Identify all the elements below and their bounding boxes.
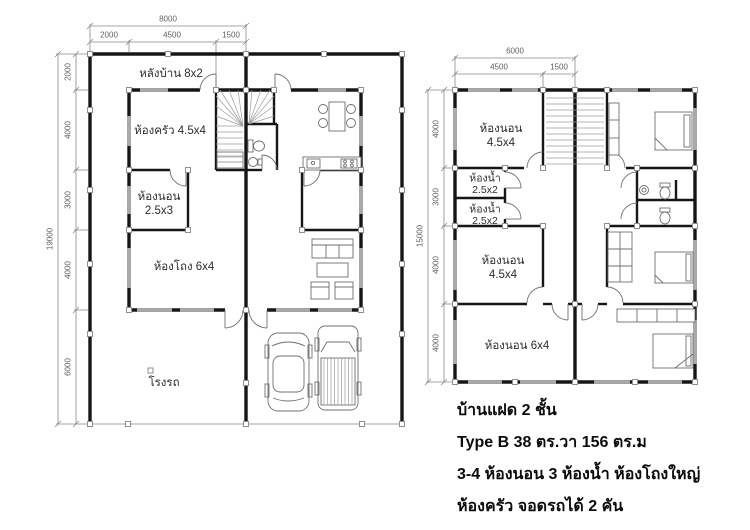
dim-sf-height-seg-3: 4000 [432,334,441,352]
room-label-hall: ห้องโถง 6x4 [154,258,215,276]
caption-extras: ห้องครัว จอดรถได้ 2 คัน [457,494,623,519]
dining-table [319,102,356,131]
dim-gf-width-seg-1: 4500 [163,31,181,40]
room-label-bedroom-1: ห้องนอน [138,188,181,206]
second-floor-furniture [608,103,695,368]
understair-cabinet [217,152,243,168]
ground-floor-dimensions [55,23,249,427]
room-label-bath-2-size: 2.5x2 [472,215,498,227]
dim-gf-height-seg-3: 4000 [64,261,73,279]
dim-sf-height-seg-1: 3000 [432,188,441,206]
sedan-car [265,333,312,411]
ground-floor-plan [55,23,405,427]
toilet-icon [248,140,265,167]
toilet-icon [660,208,670,224]
second-floor-plan [425,55,698,385]
room-label-garage: โรงรถ [148,374,179,392]
floor-plan-sheet: 8000 2000 4500 1500 19000 2000 4000 3000… [0,0,750,530]
room-label-kitchen: ห้องครัว 4.5x4 [134,122,206,140]
dim-gf-total-height: 19000 [46,228,55,250]
garage-area [148,326,361,411]
bed [655,112,692,150]
dim-sf-width-seg-0: 4500 [490,63,508,72]
wardrobe [608,232,632,282]
room-label-bedroom-top: ห้องนอน [480,120,523,138]
dim-sf-width-seg-1: 1500 [550,63,568,72]
room-label-bath-1-size: 2.5x2 [472,184,498,196]
room-label-bedroom-mid: ห้องนอน [482,252,525,270]
dim-gf-width-seg-2: 1500 [222,31,240,40]
dim-sf-height-seg-0: 4000 [432,120,441,138]
dim-sf-total-width: 6000 [506,47,524,56]
caption-type: Type B 38 ตร.วา 156 ตร.ม [457,430,647,455]
room-label-bedroom-bottom: ห้องนอน 6x4 [485,337,549,355]
pickup-truck [315,326,361,410]
dim-gf-height-seg-1: 4000 [64,121,73,139]
cabinet [617,309,695,322]
dim-gf-height-seg-0: 2000 [64,63,73,81]
bed [653,334,693,368]
second-floor-dimensions [425,55,578,385]
bed [655,252,693,283]
room-label-bedroom-top-size: 4.5x4 [487,137,515,149]
dim-gf-height-seg-2: 3000 [64,191,73,209]
caption-title: บ้านแฝด 2 ชั้น [457,398,557,423]
sofa-set [311,239,353,299]
dim-gf-total-width: 8000 [159,15,177,24]
dim-gf-width-seg-0: 2000 [100,31,118,40]
kitchen-counter [303,157,361,170]
dim-gf-height-seg-4: 6000 [64,358,73,376]
room-label-bedroom-1-size: 2.5x3 [145,205,173,217]
caption-rooms: 3-4 ห้องนอน 3 ห้องน้ำ ห้องโถงใหญ่ [457,462,700,487]
dim-sf-height-seg-2: 4000 [432,256,441,274]
wardrobe [609,103,619,155]
garage-column-marker [148,368,153,373]
toilet-icon [640,183,671,199]
room-label-bedroom-mid-size: 4.5x4 [489,269,517,281]
dim-sf-total-height: 15000 [416,225,425,247]
room-label-back-yard: หลังบ้าน 8x2 [139,65,203,83]
